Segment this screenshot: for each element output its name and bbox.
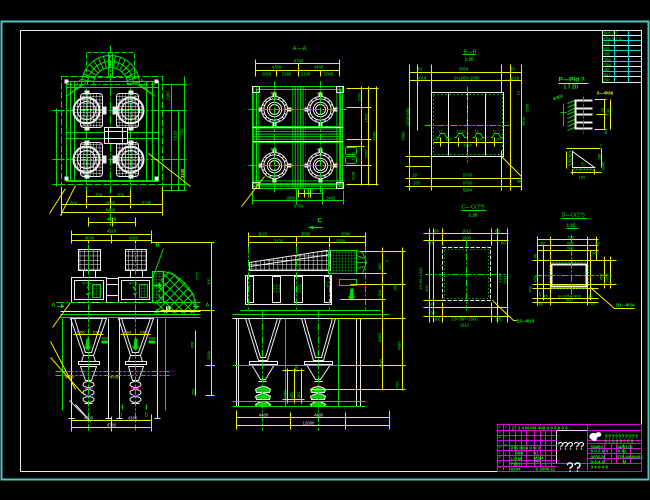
svg-text:D—D(2?): D—D(2?): [562, 213, 585, 219]
svg-text:4480: 4480: [314, 65, 324, 70]
svg-text:4520: 4520: [107, 217, 117, 222]
svg-text:63: 63: [495, 229, 500, 234]
svg-text:2×1888=2880: 2×1888=2880: [454, 76, 481, 81]
svg-text:88: 88: [588, 294, 593, 299]
svg-text:678-6M9M81: 678-6M9M81: [617, 455, 644, 460]
svg-text:5984: 5984: [463, 188, 473, 193]
svg-text:9 42: 9 42: [618, 449, 627, 454]
svg-text:2180: 2180: [166, 91, 171, 101]
svg-text:8083: 8083: [377, 332, 382, 342]
svg-text:88: 88: [533, 253, 538, 258]
svg-text:12: 12: [456, 130, 460, 134]
svg-text:944: 944: [534, 459, 542, 464]
svg-text:1018: 1018: [417, 76, 427, 81]
svg-text:C: C: [318, 219, 323, 225]
svg-text:3 4 6 4 8: 3 4 6 4 8: [591, 465, 609, 470]
svg-text:4380: 4380: [272, 65, 282, 70]
svg-text:1:15: 1:15: [567, 223, 577, 228]
svg-text:1612: 1612: [460, 323, 470, 328]
svg-text:3—Φ36: 3—Φ36: [597, 91, 614, 97]
svg-text:3040: 3040: [85, 236, 95, 241]
svg-text:2204: 2204: [503, 275, 508, 285]
svg-text:2770: 2770: [195, 271, 200, 281]
svg-text:1084: 1084: [124, 331, 132, 335]
svg-text:1:20: 1:20: [469, 213, 479, 218]
svg-text:12: 12: [461, 130, 465, 134]
svg-text:101: 101: [495, 317, 503, 322]
svg-text:40: 40: [417, 67, 422, 72]
svg-text:60: 60: [501, 241, 506, 246]
svg-text:150: 150: [579, 175, 586, 180]
svg-text:100: 100: [428, 311, 436, 316]
svg-text:4380: 4380: [128, 416, 138, 421]
svg-text:1:20: 1:20: [465, 57, 475, 62]
svg-text:Φ84: Φ84: [102, 337, 109, 341]
svg-text:12080: 12080: [303, 421, 315, 426]
svg-text:1018: 1018: [510, 76, 520, 81]
svg-text:2140: 2140: [301, 72, 311, 77]
svg-text:88: 88: [540, 241, 545, 246]
svg-text:102: 102: [271, 92, 277, 96]
svg-text:2050: 2050: [262, 72, 272, 77]
svg-text:1980: 1980: [286, 196, 296, 201]
svg-text:1635×580: 1635×580: [405, 107, 410, 126]
svg-text:180: 180: [377, 263, 382, 270]
svg-text:18: 18: [412, 173, 417, 178]
svg-text:88: 88: [518, 179, 523, 184]
svg-text:1580: 1580: [378, 358, 383, 368]
svg-text:4520: 4520: [106, 201, 116, 206]
svg-text:300: 300: [206, 278, 211, 285]
svg-text:85: 85: [592, 251, 597, 256]
svg-text:M: M: [623, 460, 627, 465]
svg-text:280: 280: [413, 181, 421, 186]
svg-text:4088: 4088: [396, 341, 401, 351]
svg-text:3 208: 3 208: [377, 289, 382, 300]
svg-text:2D—Φ24: 2D—Φ24: [616, 303, 635, 308]
svg-text:2380: 2380: [282, 72, 292, 77]
svg-text:20: 20: [590, 302, 595, 307]
svg-text:458: 458: [190, 341, 195, 348]
svg-text:60: 60: [434, 138, 438, 142]
svg-text:200: 200: [117, 193, 125, 198]
svg-text:A—A: A—A: [293, 47, 307, 53]
svg-text:1618: 1618: [173, 131, 178, 141]
svg-text:4480: 4480: [314, 413, 324, 418]
svg-text:5700: 5700: [463, 173, 473, 178]
svg-text:2080: 2080: [324, 72, 334, 77]
svg-text:250: 250: [190, 388, 195, 395]
svg-text:140: 140: [606, 108, 611, 115]
svg-text:40: 40: [510, 67, 515, 72]
svg-text:12: 12: [492, 130, 496, 134]
svg-text:4380: 4380: [129, 236, 139, 241]
svg-text:8040: 8040: [601, 161, 606, 171]
svg-text:D: D: [119, 413, 123, 419]
svg-text:1612: 1612: [462, 229, 472, 234]
svg-text:Φ700: Φ700: [129, 282, 138, 286]
svg-text:P—Pld ?: P—Pld ?: [559, 77, 585, 84]
svg-text:12: 12: [516, 90, 521, 95]
svg-text:1610: 1610: [364, 113, 369, 123]
svg-text:288: 288: [597, 153, 602, 160]
svg-text:102: 102: [317, 148, 323, 152]
svg-text:580: 580: [567, 246, 574, 251]
svg-text:5080: 5080: [401, 131, 406, 141]
svg-text:308: 308: [306, 189, 314, 194]
svg-text:Φ730: Φ730: [110, 375, 121, 380]
svg-text:12: 12: [438, 130, 442, 134]
svg-text:458: 458: [599, 273, 604, 280]
svg-text:40: 40: [430, 302, 435, 307]
svg-text:Φ700: Φ700: [82, 282, 91, 286]
svg-text:D: D: [145, 413, 149, 419]
svg-text:101: 101: [434, 317, 442, 322]
svg-text:0180: 0180: [142, 201, 152, 206]
svg-text:1 7 2D: 1 7 2D: [564, 85, 579, 91]
svg-text:550: 550: [528, 285, 533, 292]
svg-text:850: 850: [290, 392, 294, 398]
svg-text:3508: 3508: [525, 103, 530, 113]
svg-text:13×38P=1600: 13×38P=1600: [451, 317, 478, 322]
svg-text:6204: 6204: [511, 467, 522, 472]
svg-text:6 2005.11: 6 2005.11: [536, 467, 556, 472]
svg-text:80: 80: [603, 129, 608, 134]
svg-text:8780: 8780: [294, 59, 304, 64]
svg-text:750: 750: [567, 235, 574, 240]
svg-text:2702: 2702: [394, 381, 399, 391]
svg-text:B2—Φ18: B2—Φ18: [517, 319, 535, 324]
svg-text:60: 60: [434, 229, 439, 234]
svg-text:2580: 2580: [336, 239, 346, 244]
svg-text:1580: 1580: [295, 364, 299, 372]
svg-text:650: 650: [445, 138, 451, 142]
svg-text:8780: 8780: [107, 423, 117, 428]
svg-text:3080: 3080: [301, 232, 311, 237]
svg-text:Φ84: Φ84: [149, 337, 156, 341]
svg-text:45: 45: [538, 291, 543, 296]
svg-text:3108: 3108: [351, 171, 356, 181]
svg-text:4520: 4520: [107, 229, 117, 234]
svg-text:1480: 1480: [326, 196, 336, 201]
svg-text:788: 788: [603, 52, 611, 57]
svg-text:1050: 1050: [77, 331, 85, 335]
svg-text:27 3 4 M 6M 468 6 9: 27 3 4 M 6M 468 6 9 5 8 9 6: [512, 426, 569, 431]
svg-text:102: 102: [317, 92, 323, 96]
svg-text:800: 800: [393, 283, 398, 290]
svg-text:1080: 1080: [93, 331, 101, 335]
svg-text:304: 304: [95, 193, 103, 198]
svg-text:589: 589: [516, 451, 524, 456]
svg-text:2458: 2458: [206, 350, 211, 360]
svg-text:38: 38: [538, 302, 543, 307]
svg-text:1310: 1310: [463, 144, 471, 148]
svg-text:45: 45: [543, 294, 548, 299]
svg-text:6 1 0 9 9 0 6 9: 6 1 0 9 9 0 6 9: [605, 439, 634, 444]
svg-text:12: 12: [474, 130, 478, 134]
svg-text:8700: 8700: [294, 204, 304, 209]
svg-text:2160: 2160: [357, 92, 362, 102]
svg-text:A: A: [206, 303, 210, 309]
svg-text:60: 60: [496, 138, 500, 142]
svg-text:C—C(??): C—C(??): [462, 205, 485, 211]
svg-text:1080: 1080: [140, 331, 148, 335]
svg-text:A: A: [52, 303, 56, 309]
svg-text:102: 102: [271, 148, 277, 152]
svg-text:2004: 2004: [605, 273, 610, 283]
svg-text:5780: 5780: [463, 181, 473, 186]
svg-text:458: 458: [533, 275, 538, 282]
svg-text:750: 750: [180, 128, 185, 136]
svg-text:1302: 1302: [351, 151, 356, 161]
svg-text:13×80=1040: 13×80=1040: [418, 267, 423, 290]
svg-text:8400: 8400: [106, 208, 116, 213]
svg-text:50: 50: [428, 241, 433, 246]
svg-text:300: 300: [424, 285, 429, 292]
svg-text:3020: 3020: [258, 232, 268, 237]
svg-text:1600: 1600: [462, 236, 472, 241]
svg-text:3100: 3100: [180, 168, 185, 178]
svg-text:580: 580: [566, 298, 573, 303]
svg-text:2080: 2080: [341, 232, 351, 237]
svg-text:4480: 4480: [259, 413, 269, 418]
svg-text:450: 450: [297, 392, 301, 398]
svg-text:5084: 5084: [459, 67, 469, 72]
svg-text:4580: 4580: [372, 131, 377, 141]
svg-text:8 0 3 6 4: 8 0 3 6 4: [591, 449, 609, 454]
svg-text:84: 84: [595, 241, 600, 246]
svg-text:2302: 2302: [364, 149, 369, 159]
svg-text:384: 384: [70, 201, 78, 206]
svg-text:B: B: [156, 243, 160, 249]
svg-text:290: 290: [603, 78, 611, 83]
svg-text:30: 30: [600, 107, 605, 112]
svg-text:3130: 3130: [274, 239, 284, 244]
svg-text:39 8 2 5: 39 8 2 5: [603, 31, 619, 36]
svg-text:170: 170: [477, 138, 483, 142]
svg-text:3504: 3504: [521, 116, 526, 126]
svg-text:1050: 1050: [283, 390, 287, 398]
